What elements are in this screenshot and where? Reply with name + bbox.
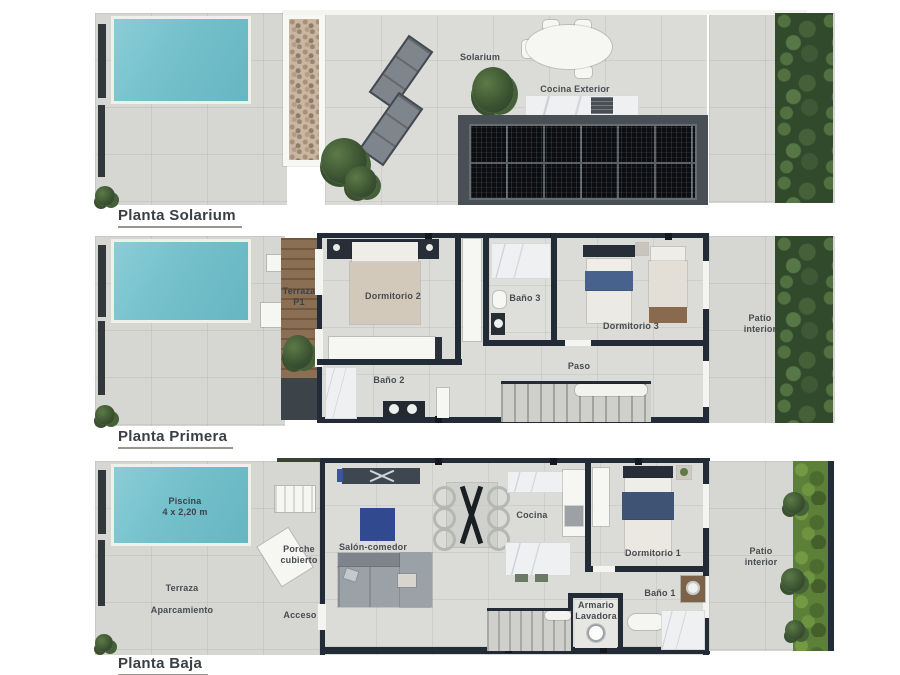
plant (95, 634, 113, 652)
room-label-cocina-exterior: Cocina Exterior (525, 84, 625, 95)
plan-baja: Piscina 4 x 2,20 m Porche cubierto Terra… (95, 458, 838, 655)
room-label-bano2: Baño 2 (359, 375, 419, 386)
pillar (665, 233, 672, 240)
shower (661, 610, 705, 650)
sun-lounger (275, 486, 315, 512)
pool (111, 16, 251, 104)
wall (483, 340, 709, 346)
plant (783, 492, 805, 514)
pool (111, 239, 251, 323)
bar-stool (515, 574, 528, 582)
armario-line2: Lavadora (575, 611, 617, 621)
bathtub (628, 614, 664, 630)
planter-strip (98, 24, 106, 98)
hedge (775, 13, 833, 203)
entrance-door (318, 604, 326, 630)
shower (325, 367, 357, 419)
terraza-line1: Terraza (166, 583, 199, 593)
pillar (550, 458, 557, 465)
sink (686, 581, 700, 595)
kitchen-island (505, 542, 571, 576)
bbq-grill (591, 97, 613, 114)
sink (389, 404, 399, 414)
plant (781, 568, 805, 592)
wall (455, 233, 461, 365)
plant (283, 335, 313, 369)
plant (95, 405, 115, 425)
bedside-lamp (333, 244, 340, 251)
bed-sheet (587, 291, 631, 323)
door-opening (565, 340, 591, 346)
room-label-dormitorio3: Dormitorio 3 (585, 321, 677, 332)
terraza-line1: Terraza (283, 286, 316, 296)
plan-title-solarium: Planta Solarium (118, 207, 242, 228)
outdoor-dining-table (526, 25, 612, 69)
planter-strip (98, 470, 106, 534)
terrace-chair (267, 255, 281, 271)
dining-chair (433, 486, 456, 509)
boundary-wall (828, 461, 834, 651)
sliding-door (315, 249, 323, 295)
nightstand (636, 243, 648, 255)
wardrobe (593, 468, 609, 526)
wall (551, 233, 557, 345)
patio-line2: interior (744, 324, 777, 334)
plant (95, 186, 115, 206)
porche-line1: Porche (283, 544, 315, 554)
bed-headboard (583, 245, 635, 257)
patio-line1: Patio (749, 546, 772, 556)
sink (494, 319, 503, 328)
bedside-lamp (426, 244, 433, 251)
stair-rail (545, 611, 571, 620)
patio-line1: Patio (748, 313, 771, 323)
shower (491, 243, 551, 279)
kitchen-counter (507, 471, 565, 493)
area-rug (360, 508, 395, 541)
bed-pillows (352, 242, 418, 262)
planter-strip (98, 321, 105, 395)
room-label-patio: Patio interior (731, 546, 791, 568)
wall (320, 458, 710, 463)
patio-line2: interior (745, 557, 778, 567)
pool-label: Piscina 4 x 2,20 m (143, 496, 227, 518)
armario-line1: Armario (578, 600, 614, 610)
terraza-line2: Aparcamiento (151, 605, 213, 615)
balcony-wall (281, 378, 317, 420)
sink (407, 404, 417, 414)
wall (317, 359, 462, 365)
planter-strip (98, 540, 105, 606)
parapet-wall (283, 10, 707, 15)
floor-plan-sheet: Solarium Cocina Exterior Planta Solarium… (0, 0, 900, 675)
plan-solarium: Solarium Cocina Exterior (95, 10, 838, 205)
closet (463, 239, 481, 341)
sofa-throw (398, 574, 416, 587)
stair-rail (575, 384, 647, 396)
piscina-line2: 4 x 2,20 m (162, 507, 207, 517)
bed-pillow (587, 259, 631, 271)
room-label-bano3: Baño 3 (497, 293, 553, 304)
kitchen-cabinet (563, 470, 585, 536)
bed-headboard (623, 466, 673, 478)
dining-chair (433, 528, 456, 551)
gravel-bed (289, 19, 319, 160)
room-label-cocina: Cocina (503, 510, 561, 521)
bed-sheet (649, 261, 687, 307)
piscina-line1: Piscina (169, 496, 202, 506)
room-label-solarium: Solarium (445, 52, 515, 63)
room-label-paso: Paso (553, 361, 605, 372)
room-label-dormitorio2: Dormitorio 2 (347, 291, 439, 302)
bed-pillows (625, 478, 671, 492)
plant-pot (680, 468, 688, 476)
plant (345, 166, 377, 198)
room-label-dormitorio1: Dormitorio 1 (607, 548, 699, 559)
plan-title-baja: Planta Baja (118, 655, 208, 675)
dining-chair (433, 507, 456, 530)
planter-strip (98, 245, 106, 317)
door-opening (593, 566, 615, 572)
bathroom-door (437, 388, 449, 418)
plan-primera: Terraza P1 Dormitorio 2 (95, 233, 838, 425)
bed-blanket-blue (622, 492, 674, 520)
porche-line2: cubierto (280, 555, 317, 565)
washing-machine (587, 624, 605, 642)
solar-panel-divider (471, 162, 695, 164)
room-label-armario-lavadora: Armario Lavadora (569, 600, 623, 622)
plant (472, 67, 514, 113)
kitchen-appliance (565, 506, 583, 526)
sideboard-accent (337, 469, 343, 482)
pillar (635, 458, 642, 465)
planter-strip (98, 105, 105, 177)
plant (785, 620, 805, 640)
bar-stool (535, 574, 548, 582)
terraza-line2: P1 (293, 297, 304, 307)
bed-pillow (651, 247, 685, 261)
wall (568, 593, 623, 598)
pillar (435, 458, 442, 465)
wall (585, 458, 591, 570)
room-label-salon: Salón-comedor (325, 542, 421, 553)
bed-blanket-blue (585, 271, 633, 291)
plan-title-primera: Planta Primera (118, 428, 233, 449)
room-label-terraza-aparcamiento: Terraza Aparcamiento (135, 583, 229, 615)
hedge (775, 236, 833, 423)
solar-panel-array (469, 124, 697, 200)
